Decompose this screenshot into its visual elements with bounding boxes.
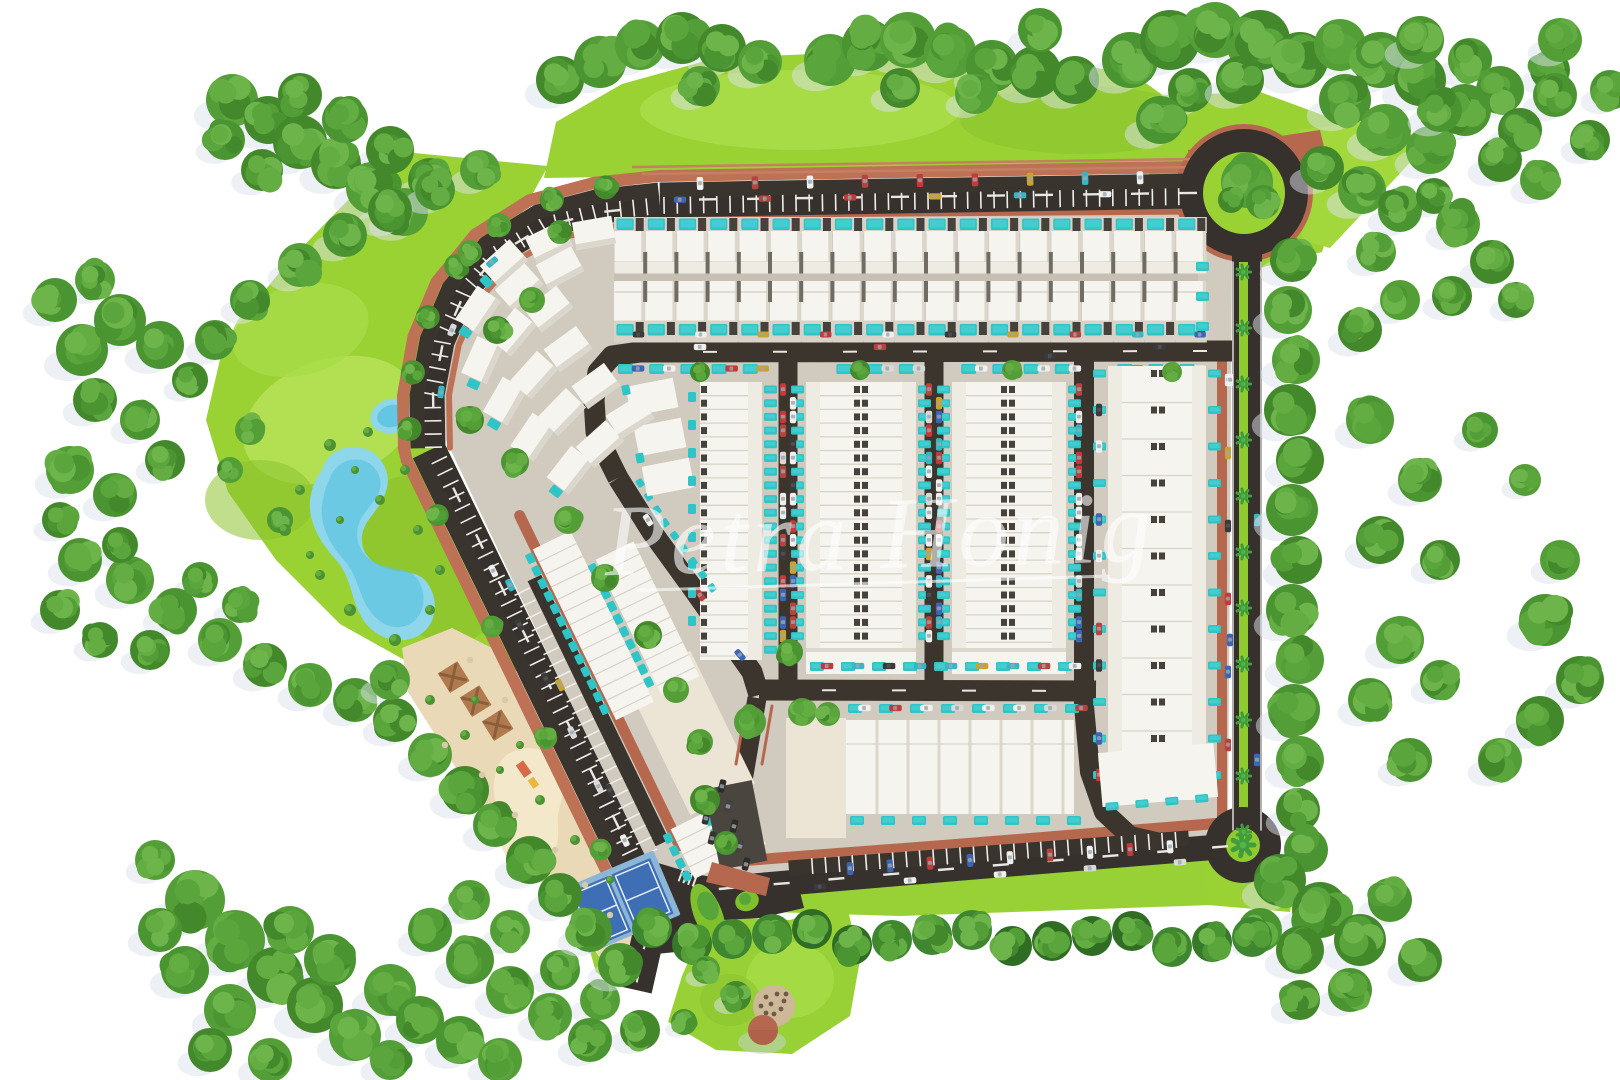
svg-text:Petra Honig: Petra Honig — [602, 471, 1157, 598]
